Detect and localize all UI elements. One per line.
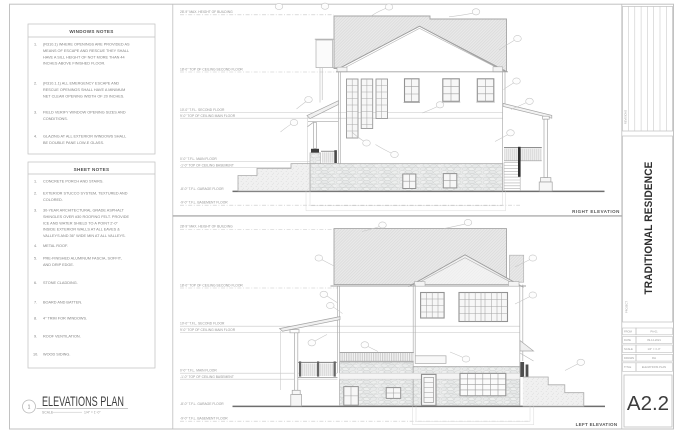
svg-text:18'-0" TOP OF CEILING SECOND F: 18'-0" TOP OF CEILING SECOND FLOOR xyxy=(180,68,243,72)
svg-text:FROM: FROM xyxy=(624,330,633,334)
svg-text:9'-0" TOP OF CEILING MAIN FLOO: 9'-0" TOP OF CEILING MAIN FLOOR xyxy=(180,114,236,118)
svg-text:7.: 7. xyxy=(34,301,37,305)
svg-text:TRADITIONAL RESIDENCE: TRADITIONAL RESIDENCE xyxy=(643,162,655,295)
svg-text:FIELD VERIFY WINDOW OPENING SI: FIELD VERIFY WINDOW OPENING SIZES AND xyxy=(43,111,126,115)
svg-text:-9'-0" T.F.L. BASEMENT FLOOR: -9'-0" T.F.L. BASEMENT FLOOR xyxy=(180,417,228,421)
svg-text:09-14-2021: 09-14-2021 xyxy=(647,338,661,342)
svg-text:CONCRETE PORCH AND STAIRS.: CONCRETE PORCH AND STAIRS. xyxy=(43,180,103,184)
svg-text:MEANS OF ESCAPE AND RESCUE THE: MEANS OF ESCAPE AND RESCUE THEY SHALL xyxy=(43,49,129,53)
svg-text:0'-0" T.F.L. MAIN FLOOR: 0'-0" T.F.L. MAIN FLOOR xyxy=(180,157,217,161)
svg-text:9.: 9. xyxy=(34,335,37,339)
svg-text:28'-9" MAX. HEIGHT OF BUILDING: 28'-9" MAX. HEIGHT OF BUILDING xyxy=(180,225,233,229)
svg-text:ELEVATIONS PLAN: ELEVATIONS PLAN xyxy=(42,393,124,409)
svg-text:WINDOWS NOTES: WINDOWS NOTES xyxy=(69,29,113,34)
svg-text:-8'-0" T.F.L. GARAGE FLOOR: -8'-0" T.F.L. GARAGE FLOOR xyxy=(180,187,224,191)
svg-text:BE DOUBLE PANE LOW-E GLASS.: BE DOUBLE PANE LOW-E GLASS. xyxy=(43,141,104,145)
svg-text:LEFT ELEVATION: LEFT ELEVATION xyxy=(576,422,618,427)
svg-text:RESCUE OPENINGS SHALL HAVE A M: RESCUE OPENINGS SHALL HAVE A MINIMUM xyxy=(43,88,125,92)
svg-text:3.: 3. xyxy=(34,111,37,115)
svg-text:PRE-FINISHED ALUMINUM FASCIA,: PRE-FINISHED ALUMINUM FASCIA, SOFFIT, xyxy=(43,257,122,261)
svg-text:1.: 1. xyxy=(34,43,37,47)
svg-text:VALLEYS AND 36" WIDE MIN AT AL: VALLEYS AND 36" WIDE MIN AT ALL VALLEYS. xyxy=(43,234,126,238)
svg-text:HAVE A SILL HEIGHT OF NOT MORE: HAVE A SILL HEIGHT OF NOT MORE THAN 44 xyxy=(43,55,125,59)
svg-text:ELEVATIONS PLAN: ELEVATIONS PLAN xyxy=(642,365,666,369)
svg-text:28'-9" MAX. HEIGHT OF BUILDING: 28'-9" MAX. HEIGHT OF BUILDING xyxy=(180,10,233,14)
svg-text:(R310.1) WHERE OPENINGS ARE PR: (R310.1) WHERE OPENINGS ARE PROVIDED AS xyxy=(43,43,130,47)
svg-text:INCHES ABOVE FINISHED FLOOR.: INCHES ABOVE FINISHED FLOOR. xyxy=(43,62,105,66)
svg-text:PROJECT: PROJECT xyxy=(625,300,629,313)
svg-text:COLORED.: COLORED. xyxy=(43,198,63,202)
svg-text:RH: RH xyxy=(652,356,656,360)
svg-text:PA-01: PA-01 xyxy=(650,330,658,334)
svg-text:METAL ROOF.: METAL ROOF. xyxy=(43,244,68,248)
svg-text:8.: 8. xyxy=(34,317,37,321)
svg-text:2.: 2. xyxy=(34,192,37,196)
svg-text:EXTERIOR STUCCO SYSTEM, TEXTUR: EXTERIOR STUCCO SYSTEM, TEXTURED AND xyxy=(43,192,128,196)
svg-text:1.: 1. xyxy=(34,180,37,184)
svg-text:1: 1 xyxy=(28,405,31,411)
svg-text:1/4" = 1'-0": 1/4" = 1'-0" xyxy=(84,411,101,415)
svg-text:SCALE: SCALE xyxy=(42,411,54,415)
svg-text:RIGHT ELEVATION: RIGHT ELEVATION xyxy=(572,209,620,214)
svg-text:NET CLEAR OPENING WIDTH OF 20: NET CLEAR OPENING WIDTH OF 20 INCHES. xyxy=(43,94,124,98)
svg-text:10'-0" T.F.L. SECOND FLOOR: 10'-0" T.F.L. SECOND FLOOR xyxy=(180,322,225,326)
svg-text:DATE: DATE xyxy=(624,338,631,342)
svg-text:SHEET NOTES: SHEET NOTES xyxy=(74,167,110,172)
svg-text:ROOF VENTILATION.: ROOF VENTILATION. xyxy=(43,335,81,339)
svg-text:4.: 4. xyxy=(34,244,37,248)
svg-text:-1'-0" TOP OF CEILING BASEMENT: -1'-0" TOP OF CEILING BASEMENT xyxy=(180,163,234,167)
svg-text:0'-0" T.F.L. MAIN FLOOR: 0'-0" T.F.L. MAIN FLOOR xyxy=(180,369,217,373)
svg-text:-9'-0" T.F.L. BASEMENT FLOOR: -9'-0" T.F.L. BASEMENT FLOOR xyxy=(180,201,228,205)
svg-text:DRAWN: DRAWN xyxy=(624,356,634,360)
svg-text:9'-0" TOP OF CEILING MAIN FLOO: 9'-0" TOP OF CEILING MAIN FLOOR xyxy=(180,328,236,332)
svg-text:AND DRIP EDGE.: AND DRIP EDGE. xyxy=(43,263,74,267)
svg-text:4.: 4. xyxy=(34,135,37,139)
svg-text:STONE CLADDING.: STONE CLADDING. xyxy=(43,281,78,285)
svg-text:WOOD SIDING.: WOOD SIDING. xyxy=(43,353,70,357)
svg-text:4" TRIM FOR WINDOWS.: 4" TRIM FOR WINDOWS. xyxy=(43,317,87,321)
svg-text:SHINGLES OVER #30 ROOFING FELT: SHINGLES OVER #30 ROOFING FELT. PROVIDE xyxy=(43,215,129,219)
svg-text:10.: 10. xyxy=(33,353,38,357)
svg-text:(R310.1.1) ALL EMERGENCY ESCAP: (R310.1.1) ALL EMERGENCY ESCAPE AND xyxy=(43,82,119,86)
svg-text:INSIDE EXTERIOR WALLS AT ALL E: INSIDE EXTERIOR WALLS AT ALL EAVES & xyxy=(43,228,120,232)
svg-text:-1'-0" TOP OF CEILING BASEMENT: -1'-0" TOP OF CEILING BASEMENT xyxy=(180,375,234,379)
svg-text:10'-0" T.F.L. SECOND FLOOR: 10'-0" T.F.L. SECOND FLOOR xyxy=(180,108,225,112)
svg-text:REVISIONS: REVISIONS xyxy=(624,110,628,124)
svg-text:TITLE: TITLE xyxy=(624,365,632,369)
svg-text:ICE AND WATER SHIELD TO A POIN: ICE AND WATER SHIELD TO A POINT 2'-0" xyxy=(43,221,119,225)
svg-text:18'-0" TOP OF CEILING SECOND F: 18'-0" TOP OF CEILING SECOND FLOOR xyxy=(180,284,243,288)
svg-text:GLAZING AT ALL EXTERIOR WINDOW: GLAZING AT ALL EXTERIOR WINDOWS SHALL xyxy=(43,135,126,139)
svg-text:30-YEAR ARCHITECTURAL GRADE AS: 30-YEAR ARCHITECTURAL GRADE ASPHALT xyxy=(43,209,124,213)
svg-text:BOARD AND BATTEN.: BOARD AND BATTEN. xyxy=(43,301,82,305)
svg-text:CONDITIONS.: CONDITIONS. xyxy=(43,117,68,121)
svg-text:SCALE: SCALE xyxy=(624,347,633,351)
svg-text:1/4" = 1'-0": 1/4" = 1'-0" xyxy=(647,347,660,351)
svg-text:A2.2: A2.2 xyxy=(627,392,669,415)
svg-text:-8'-0" T.F.L. GARAGE FLOOR: -8'-0" T.F.L. GARAGE FLOOR xyxy=(180,402,224,406)
svg-text:2.: 2. xyxy=(34,82,37,86)
svg-text:6.: 6. xyxy=(34,281,37,285)
svg-text:5.: 5. xyxy=(34,257,37,261)
svg-text:3.: 3. xyxy=(34,209,37,213)
